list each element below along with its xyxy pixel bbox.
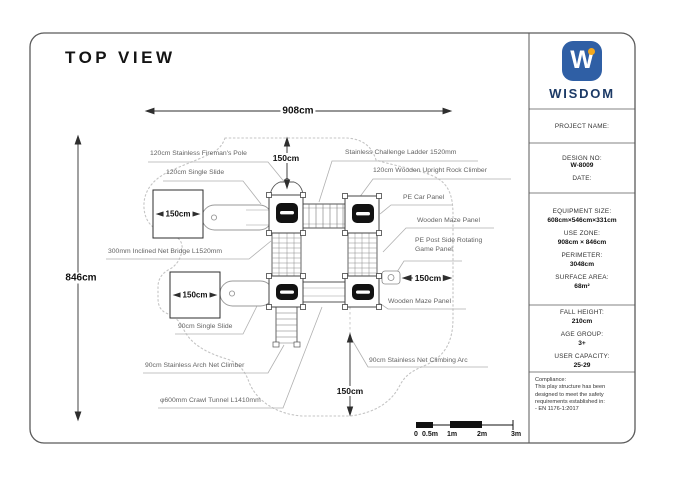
design-no-value: W-8009 [571, 162, 594, 169]
tower-bottom-right [343, 274, 382, 310]
compliance-body: This play structure has been designed to… [535, 384, 629, 406]
stats-band: FALL HEIGHT: 210cm AGE GROUP: 3+ USER CA… [529, 305, 635, 372]
dim-width-label: 908cm [280, 106, 315, 117]
label-net-bridge: 300mm Inclined Net Bridge L1520mm [108, 247, 222, 256]
arch-net-climber [273, 307, 300, 347]
crawl-tunnel [303, 282, 345, 302]
compliance-heading: Compliance: [535, 377, 566, 384]
scale-bar [416, 420, 513, 430]
label-maze-panel-top: Wooden Maze Panel [417, 216, 480, 225]
compliance-standard: - EN 1176-1:2017 [535, 406, 579, 413]
tower-top-left [267, 179, 306, 236]
label-arch-net-climber: 90cm Stainless Arch Net Climber [145, 361, 244, 370]
label-car-panel: PE Car Panel [403, 193, 444, 202]
dim-right-gap-label: 150cm [413, 273, 443, 283]
spec-surface-area: SURFACE AREA: 68m² [555, 274, 608, 290]
wisdom-logo: W [562, 41, 602, 81]
label-rock-climber: 120cm Wooden Upright Rock Climber [373, 166, 487, 175]
dim-box-b-label: 150cm [181, 291, 210, 300]
project-name-band: PROJECT NAME: [529, 109, 635, 143]
scale-tick-2: 2m [477, 431, 487, 438]
label-challenge-ladder: Stainless Challenge Ladder 1520mm [345, 148, 456, 157]
scale-tick-05: 0.5m [422, 431, 438, 438]
brand-block: W WISDOM [529, 33, 635, 109]
brand-name: WISDOM [549, 86, 615, 101]
label-fireman-pole: 120cm Stainless Fireman's Pole [150, 149, 247, 158]
info-sidebar: W WISDOM PROJECT NAME: DESIGN NO: W-8009… [529, 33, 635, 443]
net-column-left [272, 233, 301, 277]
dim-top-gap-label: 150cm [271, 153, 301, 163]
tower-bottom-left [267, 274, 306, 310]
drawing-sheet-page: TOP VIEW 120cm Stainless Fireman's Pole … [0, 0, 680, 481]
stat-fall-height: FALL HEIGHT: 210cm [560, 309, 604, 325]
dim-box-a-label: 150cm [164, 210, 193, 219]
stat-age-group: AGE GROUP: 3+ [561, 331, 603, 347]
spec-equipment-size: EQUIPMENT SIZE: 608cm×546cm×331cm [547, 208, 616, 224]
slide-top [202, 205, 272, 230]
design-no-band: DESIGN NO: W-8009 DATE: [529, 143, 635, 193]
date-label: DATE: [572, 175, 591, 182]
project-name-label: PROJECT NAME: [555, 123, 609, 130]
specs-band: EQUIPMENT SIZE: 608cm×546cm×331cm USE ZO… [529, 193, 635, 305]
label-crawl-tunnel: φ600mm Crawl Tunnel L1410mm [160, 396, 261, 405]
slide-bottom [220, 281, 273, 306]
spec-use-zone: USE ZONE: 908cm × 846cm [558, 230, 607, 246]
scale-tick-3: 3m [511, 431, 521, 438]
logo-orange-dot-icon [588, 48, 595, 55]
page-title: TOP VIEW [65, 48, 176, 68]
compliance-band: Compliance: This play structure has been… [529, 372, 635, 443]
label-net-climbing-arc: 90cm Stainless Net Climbing Arc [369, 356, 468, 365]
stat-user-capacity: USER CAPACITY: 25-29 [554, 353, 609, 369]
tower-top-right [343, 194, 382, 236]
dim-height-label: 846cm [63, 273, 98, 284]
label-rotating-game-panel: PE Post Side Rotating Game Panel [415, 236, 495, 254]
scale-tick-1: 1m [447, 431, 457, 438]
dim-bottom-gap-label: 150cm [335, 386, 365, 396]
net-column-right [348, 233, 377, 277]
label-single-slide-90: 90cm Single Slide [178, 322, 232, 331]
label-maze-panel-bottom: Wooden Maze Panel [388, 297, 451, 306]
challenge-ladder-bridge [303, 204, 345, 228]
rotating-game-panel [382, 271, 400, 284]
spec-perimeter: PERIMETER: 3048cm [561, 252, 602, 268]
scale-tick-0: 0 [414, 431, 418, 438]
design-no-label: DESIGN NO: [562, 155, 602, 162]
label-single-slide-120: 120cm Single Slide [166, 168, 224, 177]
